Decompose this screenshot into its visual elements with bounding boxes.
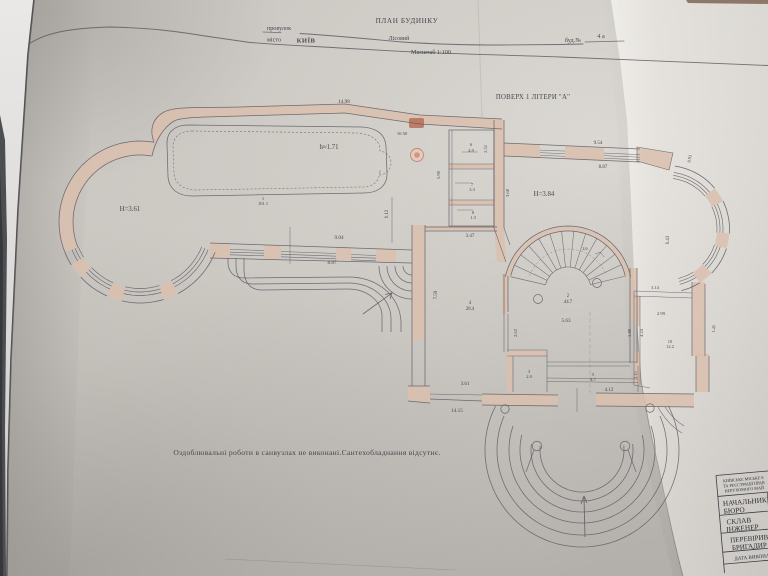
svg-text:3.3: 3.3 [469,187,475,192]
svg-text:3.61: 3.61 [461,382,470,387]
svg-text:1.3: 1.3 [470,215,476,220]
svg-text:4.9: 4.9 [468,148,474,153]
svg-text:14.15: 14.15 [451,408,463,414]
svg-text:44.7: 44.7 [564,300,573,305]
svg-text:28.4: 28.4 [466,307,475,312]
svg-text:буд.№: буд.№ [565,37,581,44]
svg-text:5.90: 5.90 [436,170,441,179]
svg-text:8.87: 8.87 [599,165,608,170]
svg-text:2.52: 2.52 [483,145,488,153]
svg-text:4 а: 4 а [597,33,605,40]
svg-text:Н=3.84: Н=3.84 [534,191,555,198]
svg-text:1.15: 1.15 [633,371,638,378]
svg-text:3.68: 3.68 [505,188,510,197]
svg-text:місто: місто [267,37,281,44]
svg-text:12.2: 12.2 [666,344,674,349]
svg-text:6.12: 6.12 [385,209,390,218]
svg-text:2.62: 2.62 [513,328,518,337]
svg-text:6.43: 6.43 [666,235,671,244]
svg-text:4.24: 4.24 [639,328,644,336]
svg-text:КИЇВ: КИЇВ [297,38,316,45]
svg-text:Лісовий: Лісовий [389,35,410,42]
svg-text:8.87: 8.87 [327,260,336,266]
svg-text:2.99: 2.99 [657,311,666,316]
svg-text:Масштаб 1:100: Масштаб 1:100 [411,49,451,56]
svg-text:9.04: 9.04 [334,235,343,241]
svg-text:14.98: 14.98 [338,99,350,105]
svg-text:3.14: 3.14 [651,285,659,290]
svg-text:1.45: 1.45 [711,324,717,333]
svg-text:101.1: 101.1 [258,201,268,206]
svg-text:ПОВЕРХ 1 ЛІТЕРИ "А": ПОВЕРХ 1 ЛІТЕРИ "А" [496,94,570,101]
svg-text:5.63: 5.63 [561,318,570,324]
svg-text:ПЛАН БУДИНКУ: ПЛАН БУДИНКУ [376,17,439,25]
svg-text:7.59: 7.59 [434,290,439,299]
svg-text:h≈1.71: h≈1.71 [319,144,338,151]
svg-text:БЮРО: БЮРО [723,505,745,516]
svg-text:3.88: 3.88 [627,328,632,336]
svg-text:9.54: 9.54 [594,141,603,146]
svg-text:Оздоблювальні роботи в санвузл: Оздоблювальні роботи в санвузлах не вико… [173,448,440,457]
svg-text:провулок: провулок [267,25,292,32]
svg-text:4.12: 4.12 [605,388,614,393]
svg-text:Н=3.61: Н=3.61 [120,206,141,213]
svg-text:2.0: 2.0 [526,374,532,379]
svg-text:10.50: 10.50 [397,131,408,136]
svg-text:4.7: 4.7 [590,377,596,382]
svg-text:3.47: 3.47 [466,234,475,239]
